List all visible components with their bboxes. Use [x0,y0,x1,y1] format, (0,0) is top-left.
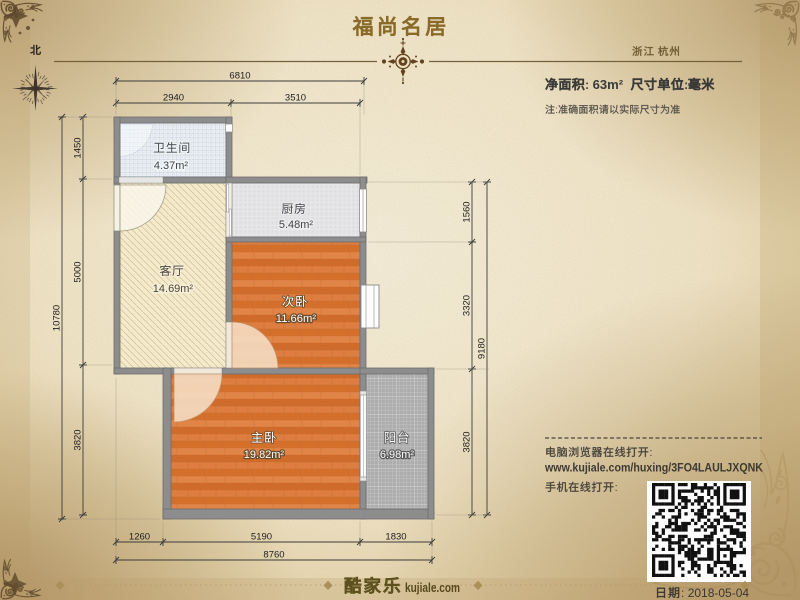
svg-text:www.kujiale.com/huxing/3FO4LAU: www.kujiale.com/huxing/3FO4LAULJXQNK [544,463,764,475]
svg-text:11.66m²: 11.66m² [276,313,317,325]
svg-text:1450: 1450 [73,137,84,158]
svg-text::: : [649,447,652,459]
svg-text::: : [585,77,589,92]
svg-text:2940: 2940 [163,93,184,104]
svg-text:4.37m²: 4.37m² [154,160,189,172]
svg-text:1560: 1560 [462,201,473,222]
svg-text:3320: 3320 [462,295,473,316]
svg-text:6.98m²: 6.98m² [380,449,415,461]
svg-text:10780: 10780 [52,305,63,331]
svg-text:1260: 1260 [129,532,150,543]
svg-text::: : [555,105,558,116]
svg-text:2018-05-04: 2018-05-04 [688,586,750,600]
svg-text:14.69m²: 14.69m² [153,283,194,295]
svg-text:6810: 6810 [229,71,250,82]
svg-text::: : [684,77,688,92]
svg-text:5190: 5190 [251,532,272,543]
svg-text:8760: 8760 [263,550,284,561]
svg-text:5000: 5000 [73,261,84,282]
svg-text::: : [681,586,684,600]
svg-text::: : [615,482,618,494]
svg-text:63m²: 63m² [593,77,624,92]
svg-text:1830: 1830 [385,532,406,543]
svg-text:kujiale.com: kujiale.com [405,581,460,595]
svg-text:3820: 3820 [462,431,473,452]
svg-text:3510: 3510 [285,93,306,104]
svg-text:5.48m²: 5.48m² [279,219,314,231]
svg-text:3820: 3820 [73,429,84,450]
svg-text:9180: 9180 [477,338,488,359]
svg-text:19.82m²: 19.82m² [244,449,285,461]
